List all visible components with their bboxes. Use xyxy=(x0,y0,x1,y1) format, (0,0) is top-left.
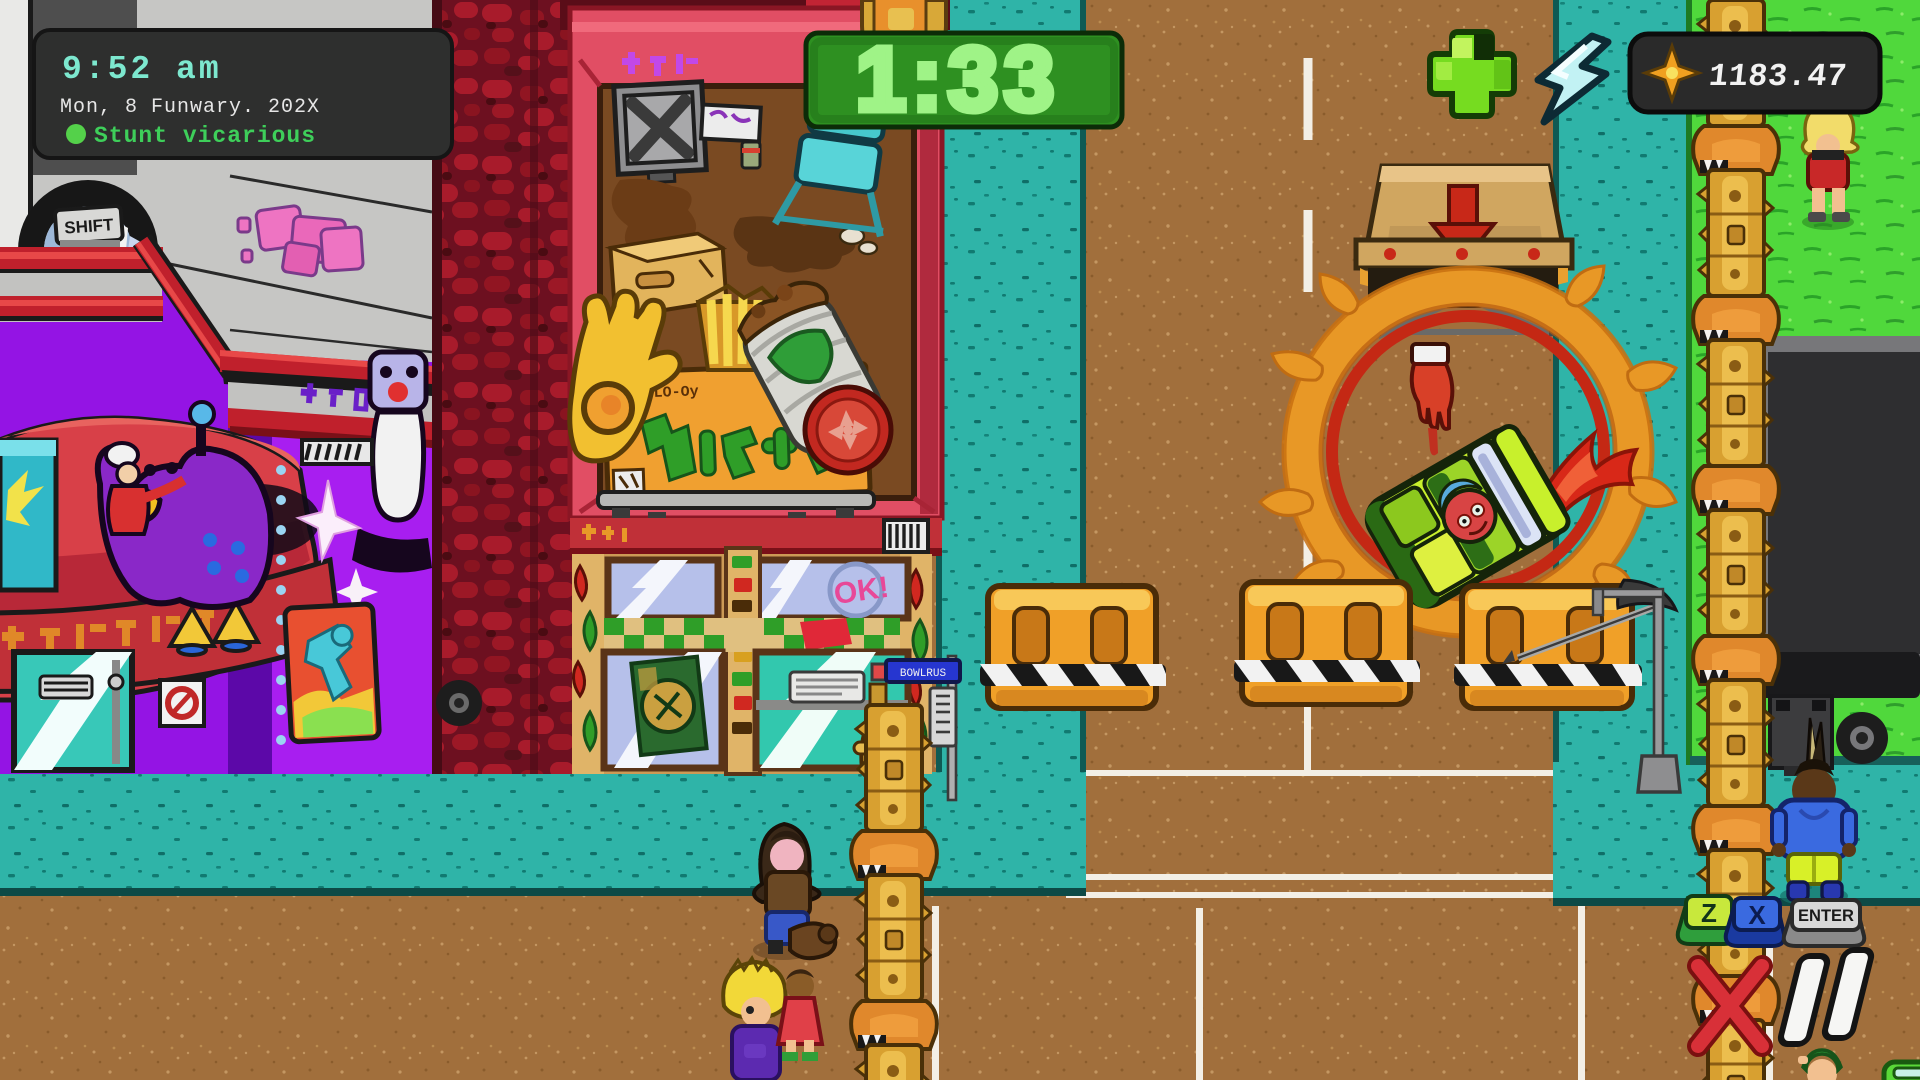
svg-text:BOWLRUS: BOWLRUS xyxy=(900,668,947,680)
svg-text:Stunt vicarious: Stunt vicarious xyxy=(94,123,316,149)
svg-text:1:33: 1:33 xyxy=(856,30,1060,130)
svg-text:Mon, 8 Funwary. 202X: Mon, 8 Funwary. 202X xyxy=(60,96,320,119)
svg-text:X: X xyxy=(1748,900,1766,930)
svg-text:9:52 am: 9:52 am xyxy=(62,51,222,88)
svg-text:Z: Z xyxy=(1701,898,1717,928)
svg-text:ENTER: ENTER xyxy=(1798,907,1854,925)
svg-text:1183.47: 1183.47 xyxy=(1707,58,1849,95)
svg-text:SHIFT: SHIFT xyxy=(64,215,115,237)
